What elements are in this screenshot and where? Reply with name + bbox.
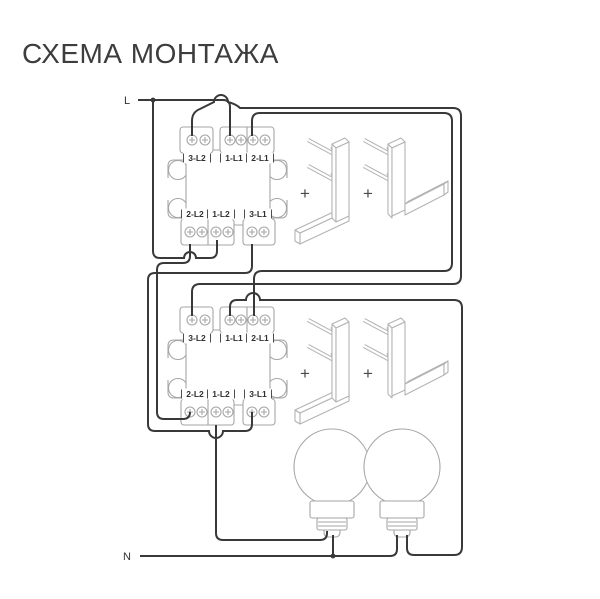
switch-module-1 (168, 127, 287, 245)
wire-neutral (140, 535, 397, 556)
terminal-label: 1-L1 (220, 153, 248, 164)
neutral-label: N (123, 551, 131, 563)
svg-text:1-L1: 1-L1 (225, 333, 243, 343)
plus-sign: + (363, 364, 373, 383)
svg-text:2-L2: 2-L2 (186, 389, 204, 399)
terminal-label: 1-L2 (207, 389, 235, 400)
terminal-label: 3-L2 (183, 153, 211, 164)
terminal-label: 3-L1 (244, 389, 272, 400)
svg-text:2-L1: 2-L1 (251, 333, 269, 343)
terminal-label: 1-L1 (220, 333, 248, 344)
svg-text:1-L1: 1-L1 (225, 153, 243, 163)
terminal-label: 2-L1 (246, 153, 274, 164)
plus-sign: + (363, 184, 373, 203)
line-label: L (124, 95, 130, 107)
terminal-label: 3-L1 (244, 209, 272, 220)
wiring-diagram: СХЕМА МОНТАЖА + + + + L N 3-L2 1-L1 2-L1… (0, 0, 600, 599)
svg-text:3-L2: 3-L2 (188, 153, 206, 163)
bulb-1 (294, 429, 370, 537)
svg-text:3-L2: 3-L2 (188, 333, 206, 343)
bulb-2 (364, 429, 440, 537)
svg-text:2-L1: 2-L1 (251, 153, 269, 163)
terminal-label: 1-L2 (207, 209, 235, 220)
svg-text:1-L2: 1-L2 (212, 389, 230, 399)
terminal-label: 2-L2 (181, 209, 209, 220)
svg-text:3-L1: 3-L1 (249, 209, 267, 219)
switch-module-2 (168, 307, 287, 425)
terminal-label: 2-L1 (246, 333, 274, 344)
terminal-label: 2-L2 (181, 389, 209, 400)
page-title: СХЕМА МОНТАЖА (22, 38, 279, 69)
svg-text:2-L2: 2-L2 (186, 209, 204, 219)
plus-sign: + (300, 184, 310, 203)
svg-text:3-L1: 3-L1 (249, 389, 267, 399)
plus-sign: + (300, 364, 310, 383)
svg-text:1-L2: 1-L2 (212, 209, 230, 219)
terminal-label: 3-L2 (183, 333, 211, 344)
